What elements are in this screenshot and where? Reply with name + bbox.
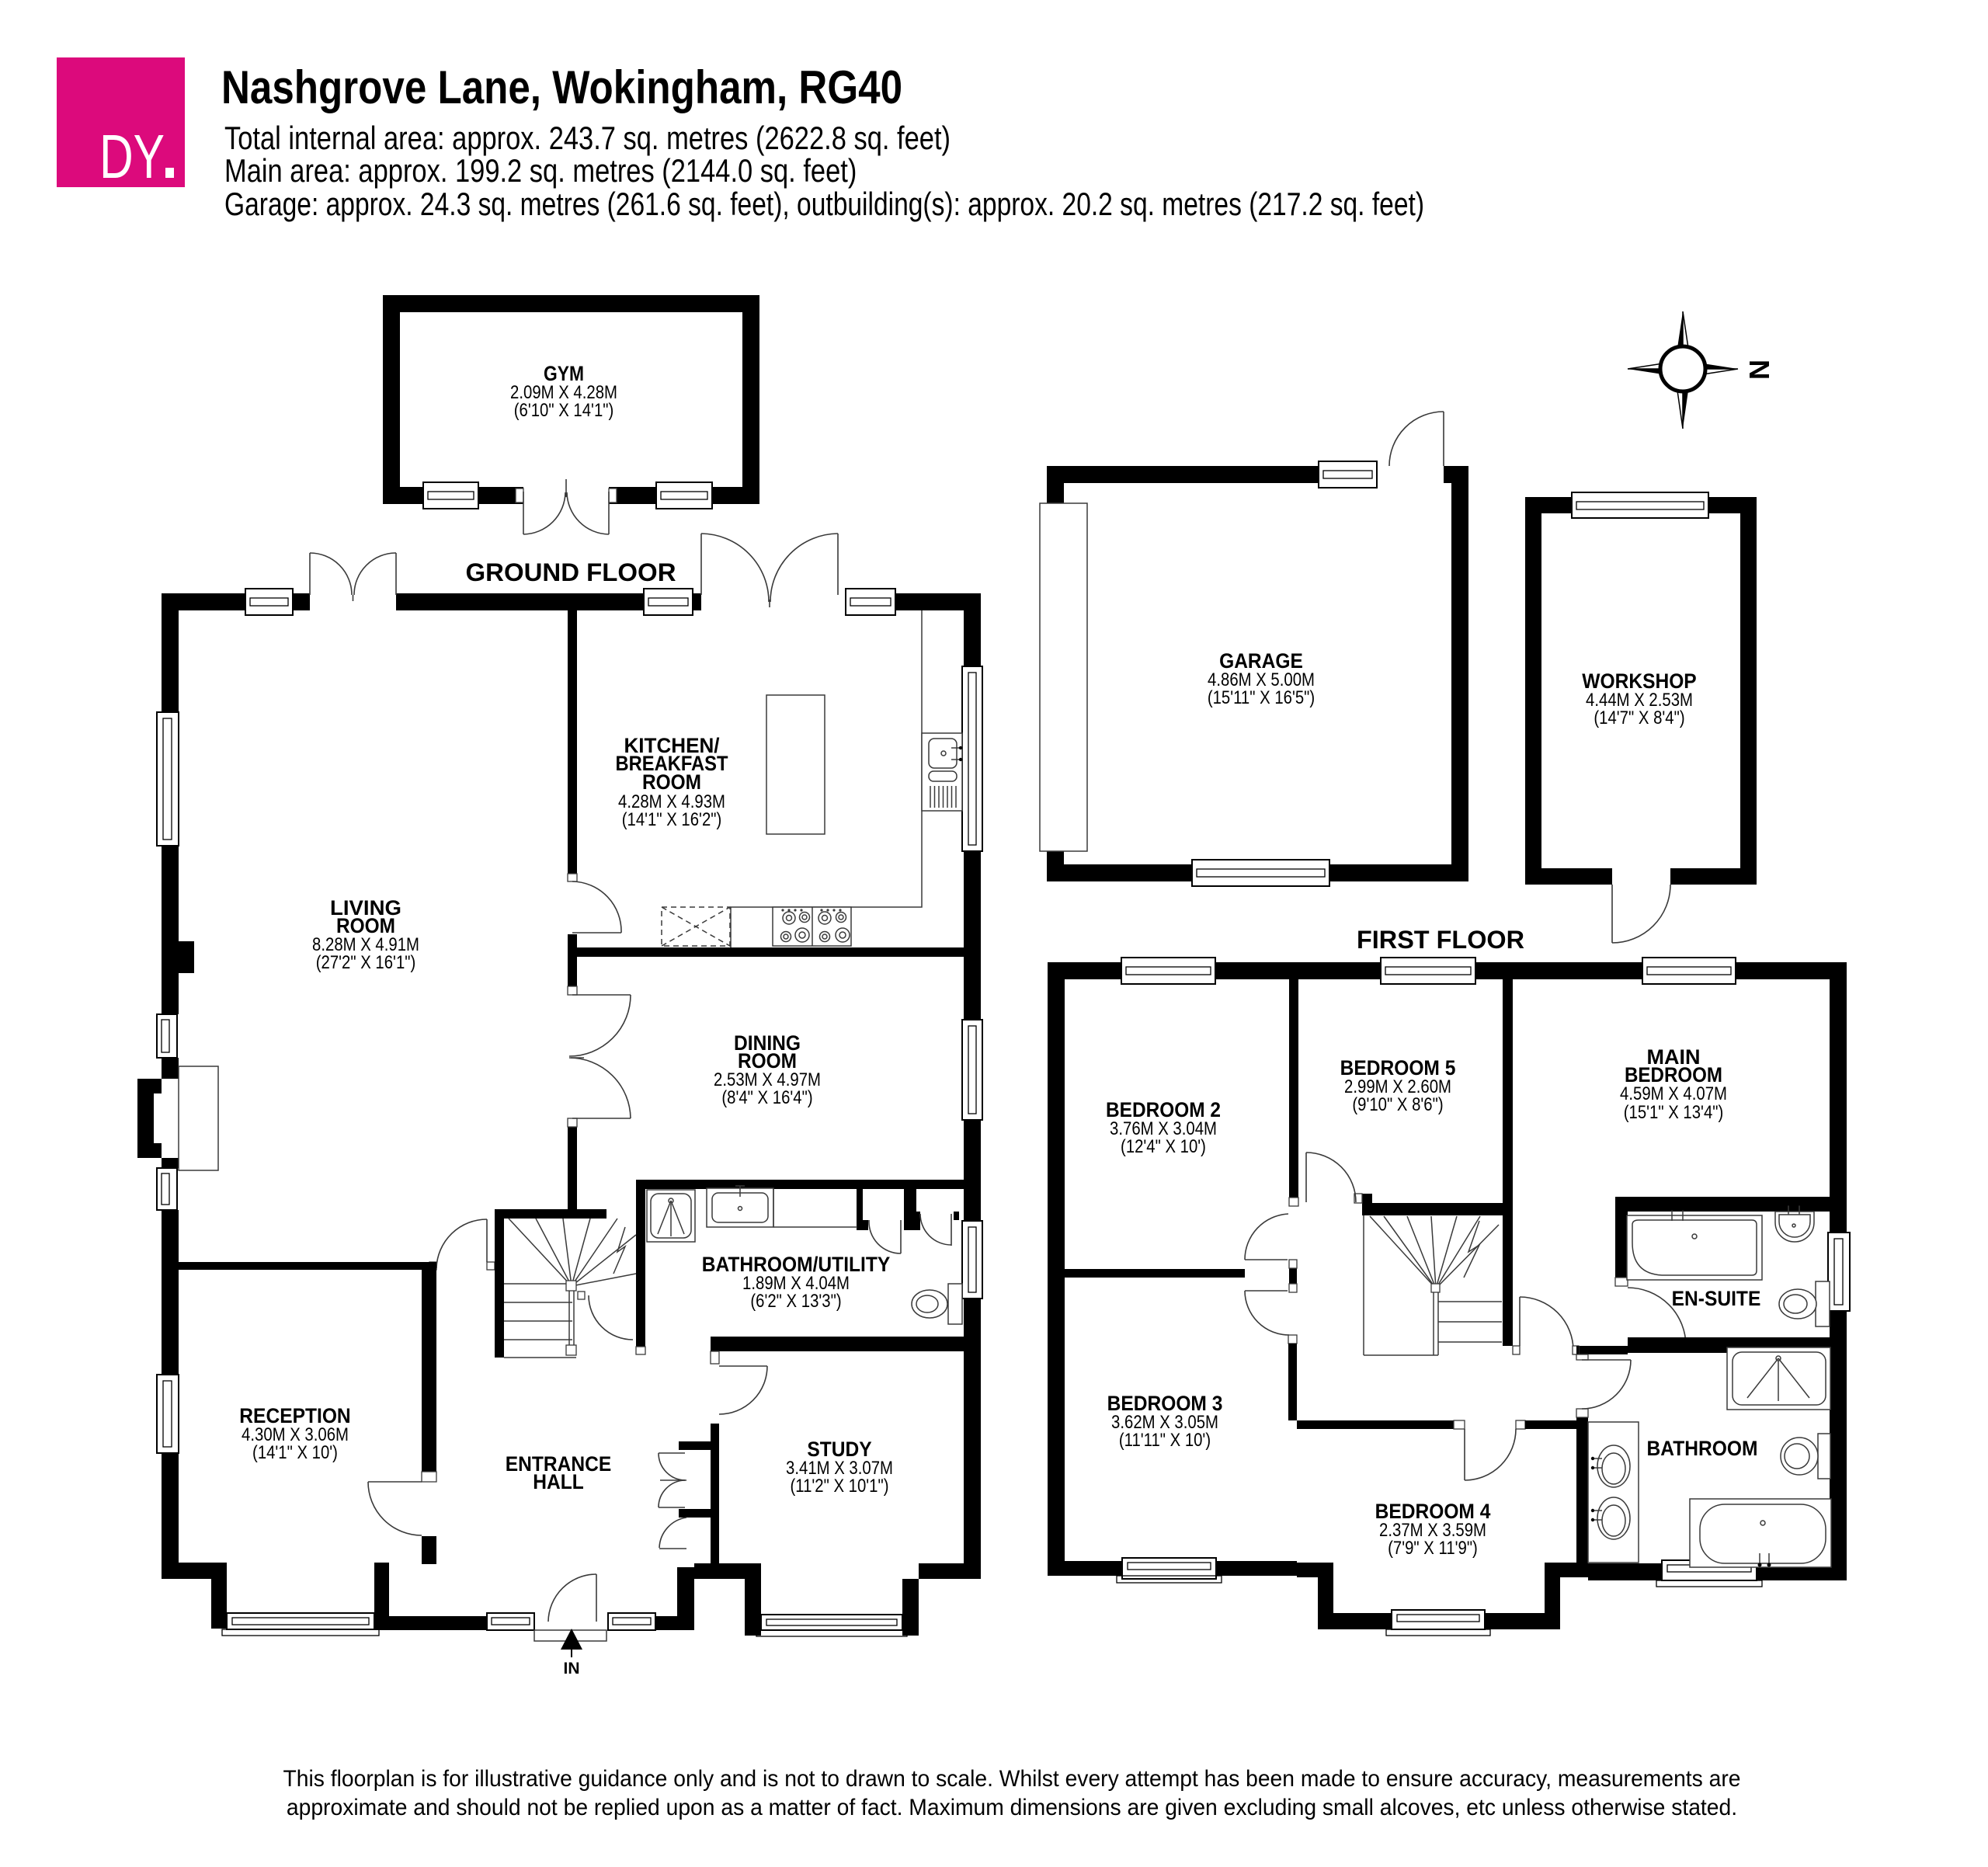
svg-text:GROUND FLOOR: GROUND FLOOR xyxy=(466,558,676,586)
svg-text:(14'7" X 8'4"): (14'7" X 8'4") xyxy=(1594,708,1684,728)
svg-text:(15'1" X 13'4"): (15'1" X 13'4") xyxy=(1624,1102,1724,1123)
svg-text:(6'10" X 14'1"): (6'10" X 14'1") xyxy=(514,400,614,421)
svg-text:(15'11" X 16'5"): (15'11" X 16'5") xyxy=(1208,687,1315,708)
svg-text:approximate and should not be: approximate and should not be replied up… xyxy=(287,1795,1737,1820)
svg-text:(9'10" X 8'6"): (9'10" X 8'6") xyxy=(1352,1094,1443,1115)
svg-text:IN: IN xyxy=(564,1660,580,1678)
svg-text:ROOM: ROOM xyxy=(642,770,701,794)
svg-text:DY: DY xyxy=(99,122,165,191)
svg-text:Garage: approx. 24.3 sq. metre: Garage: approx. 24.3 sq. metres (261.6 s… xyxy=(224,186,1424,222)
svg-text:(11'11" X 10'): (11'11" X 10') xyxy=(1119,1430,1211,1451)
svg-text:N: N xyxy=(1743,360,1775,380)
svg-text:FIRST FLOOR: FIRST FLOOR xyxy=(1357,926,1524,954)
svg-text:(11'2" X 10'1"): (11'2" X 10'1") xyxy=(791,1476,889,1497)
svg-text:(14'1" X 10'): (14'1" X 10') xyxy=(252,1442,338,1463)
svg-text:Nashgrove Lane, Wokingham, RG4: Nashgrove Lane, Wokingham, RG40 xyxy=(221,61,902,113)
svg-text:(12'4" X 10'): (12'4" X 10') xyxy=(1121,1136,1206,1157)
svg-text:(14'1" X 16'2"): (14'1" X 16'2") xyxy=(622,809,722,830)
svg-text:(27'2" X 16'1"): (27'2" X 16'1") xyxy=(316,952,416,973)
svg-text:(6'2" X 13'3"): (6'2" X 13'3") xyxy=(750,1291,841,1312)
svg-text:4.59M X 4.07M: 4.59M X 4.07M xyxy=(1620,1083,1727,1104)
svg-text:BATHROOM: BATHROOM xyxy=(1647,1437,1758,1460)
svg-text:EN-SUITE: EN-SUITE xyxy=(1672,1287,1761,1310)
svg-text:HALL: HALL xyxy=(533,1470,584,1493)
svg-text:(7'9" X 11'9"): (7'9" X 11'9") xyxy=(1388,1538,1478,1559)
svg-text:Main area: approx. 199.2 sq. m: Main area: approx. 199.2 sq. metres (214… xyxy=(224,152,857,189)
svg-text:(8'4" X 16'4"): (8'4" X 16'4") xyxy=(721,1087,812,1108)
svg-text:Total internal area: approx. 2: Total internal area: approx. 243.7 sq. m… xyxy=(224,120,951,156)
svg-text:This floorplan is for illustra: This floorplan is for illustrative guida… xyxy=(283,1766,1741,1792)
